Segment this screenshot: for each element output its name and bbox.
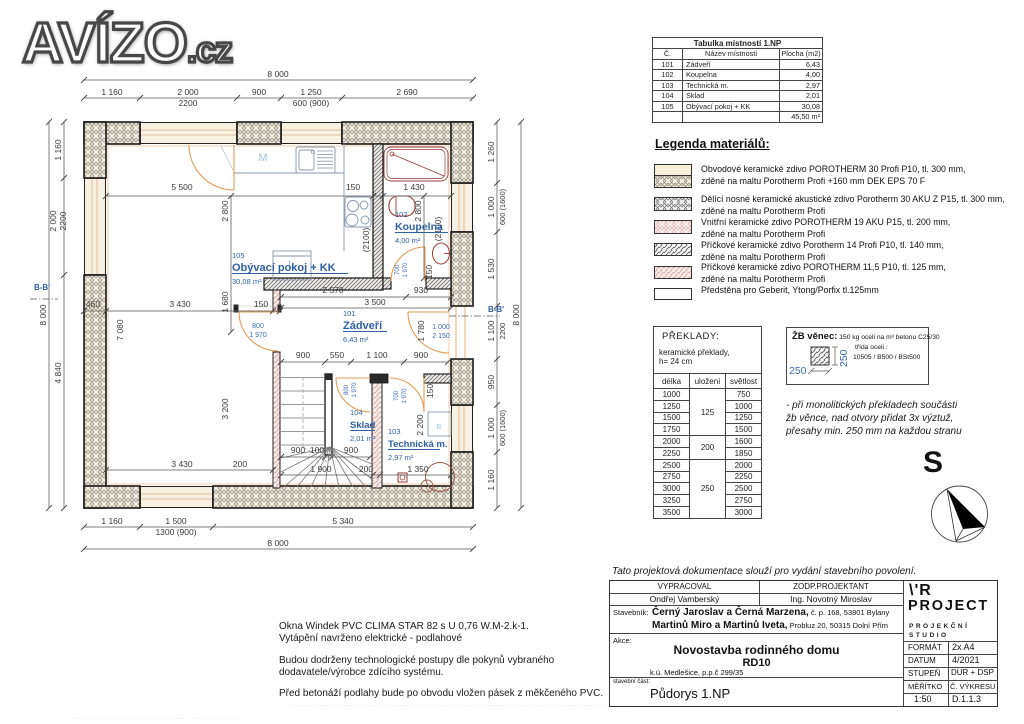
svg-text:600 (1600): 600 (1600) bbox=[498, 409, 507, 446]
svg-text:950: 950 bbox=[486, 375, 496, 389]
svg-text:2 690: 2 690 bbox=[396, 87, 418, 97]
svg-text:3 430: 3 430 bbox=[171, 459, 193, 469]
svg-text:1 350: 1 350 bbox=[407, 464, 429, 474]
svg-text:250: 250 bbox=[789, 365, 807, 377]
svg-text:460: 460 bbox=[86, 299, 100, 309]
svg-text:2200: 2200 bbox=[498, 323, 507, 340]
svg-text:(2100): (2100) bbox=[361, 228, 371, 253]
svg-text:8 000: 8 000 bbox=[38, 304, 48, 326]
svg-text:1 250: 1 250 bbox=[300, 87, 322, 97]
svg-text:7 080: 7 080 bbox=[115, 319, 125, 341]
svg-text:1 160: 1 160 bbox=[101, 516, 123, 526]
svg-text:2 200: 2 200 bbox=[415, 414, 425, 436]
svg-text:Technická m.: Technická m. bbox=[388, 439, 448, 450]
svg-text:8 000: 8 000 bbox=[511, 304, 521, 326]
svg-text:1 970: 1 970 bbox=[249, 332, 267, 339]
svg-text:1 000: 1 000 bbox=[432, 324, 450, 331]
svg-text:700: 700 bbox=[394, 390, 400, 401]
svg-text:930: 930 bbox=[414, 285, 428, 295]
svg-text:5 500: 5 500 bbox=[171, 182, 193, 192]
svg-text:Obývací pokoj + KK: Obývací pokoj + KK bbox=[232, 262, 336, 274]
svg-text:2 800: 2 800 bbox=[413, 200, 423, 222]
svg-text:1 160: 1 160 bbox=[101, 87, 123, 97]
svg-text:M: M bbox=[258, 152, 267, 164]
svg-text:150: 150 bbox=[254, 299, 268, 309]
svg-text:B-B': B-B' bbox=[488, 305, 504, 314]
svg-text:8 000: 8 000 bbox=[267, 538, 289, 548]
svg-text:900: 900 bbox=[291, 445, 305, 455]
svg-text:101: 101 bbox=[343, 309, 356, 318]
svg-text:105: 105 bbox=[232, 251, 245, 260]
svg-text:102: 102 bbox=[395, 210, 408, 219]
svg-text:1 970: 1 970 bbox=[402, 388, 408, 404]
svg-text:1 970: 1 970 bbox=[403, 262, 409, 278]
svg-text:2,97 m²: 2,97 m² bbox=[388, 453, 414, 462]
svg-text:Sklad: Sklad bbox=[350, 420, 376, 431]
svg-text:1 000: 1 000 bbox=[486, 196, 496, 218]
svg-text:250: 250 bbox=[838, 349, 850, 367]
svg-text:700: 700 bbox=[395, 264, 401, 275]
svg-text:1 260: 1 260 bbox=[486, 141, 496, 163]
svg-text:100: 100 bbox=[310, 445, 324, 455]
svg-text:3 430: 3 430 bbox=[169, 299, 191, 309]
svg-text:4 840: 4 840 bbox=[53, 362, 63, 384]
svg-text:1 900: 1 900 bbox=[310, 464, 332, 474]
svg-text:2 150: 2 150 bbox=[432, 333, 450, 340]
svg-text:4,00 m²: 4,00 m² bbox=[395, 236, 421, 245]
svg-text:600 (900): 600 (900) bbox=[293, 98, 330, 108]
svg-text:Zádveří: Zádveří bbox=[343, 320, 383, 332]
svg-text:150: 150 bbox=[425, 384, 435, 398]
svg-text:1 100: 1 100 bbox=[366, 350, 388, 360]
svg-text:3 200: 3 200 bbox=[220, 398, 230, 420]
svg-text:8 000: 8 000 bbox=[267, 69, 289, 79]
svg-text:600 (1600): 600 (1600) bbox=[498, 188, 507, 225]
svg-text:1 430: 1 430 bbox=[403, 182, 425, 192]
svg-text:800: 800 bbox=[252, 323, 264, 330]
svg-text:103: 103 bbox=[388, 427, 401, 436]
svg-text:3 500: 3 500 bbox=[364, 297, 386, 307]
svg-text:Koupelna: Koupelna bbox=[395, 221, 443, 233]
svg-text:1 530: 1 530 bbox=[486, 258, 496, 280]
svg-text:30,08 m²: 30,08 m² bbox=[232, 277, 262, 286]
svg-text:1 780: 1 780 bbox=[416, 320, 426, 342]
svg-text:200: 200 bbox=[233, 459, 247, 469]
svg-text:550: 550 bbox=[330, 350, 344, 360]
svg-text:2 570: 2 570 bbox=[322, 285, 344, 295]
svg-text:2200: 2200 bbox=[58, 211, 68, 230]
svg-text:B: B bbox=[437, 424, 442, 431]
svg-text:S: S bbox=[923, 446, 943, 479]
svg-text:2200: 2200 bbox=[179, 98, 198, 108]
svg-text:900: 900 bbox=[414, 350, 428, 360]
svg-text:150: 150 bbox=[346, 182, 360, 192]
svg-text:1 000: 1 000 bbox=[486, 417, 496, 439]
svg-text:900: 900 bbox=[344, 445, 358, 455]
svg-text:104: 104 bbox=[350, 408, 363, 417]
svg-text:B-B': B-B' bbox=[34, 283, 50, 292]
svg-text:900: 900 bbox=[252, 87, 266, 97]
svg-text:900: 900 bbox=[296, 350, 310, 360]
svg-text:1 680: 1 680 bbox=[220, 291, 230, 313]
svg-text:5 340: 5 340 bbox=[332, 516, 354, 526]
svg-text:200: 200 bbox=[359, 464, 373, 474]
svg-text:800: 800 bbox=[344, 384, 350, 395]
svg-text:2 000: 2 000 bbox=[48, 210, 58, 232]
svg-text:2,01 m²: 2,01 m² bbox=[350, 434, 376, 443]
svg-text:150: 150 bbox=[424, 265, 434, 279]
svg-text:1300 (900): 1300 (900) bbox=[155, 527, 196, 537]
svg-text:1 100: 1 100 bbox=[486, 320, 496, 342]
svg-text:1 500: 1 500 bbox=[165, 516, 187, 526]
svg-text:1 160: 1 160 bbox=[53, 139, 63, 161]
svg-text:1 970: 1 970 bbox=[352, 382, 358, 398]
svg-text:1 160: 1 160 bbox=[486, 469, 496, 491]
svg-text:6,43 m²: 6,43 m² bbox=[343, 335, 369, 344]
svg-text:2 800: 2 800 bbox=[220, 200, 230, 222]
svg-text:2 000: 2 000 bbox=[177, 87, 199, 97]
